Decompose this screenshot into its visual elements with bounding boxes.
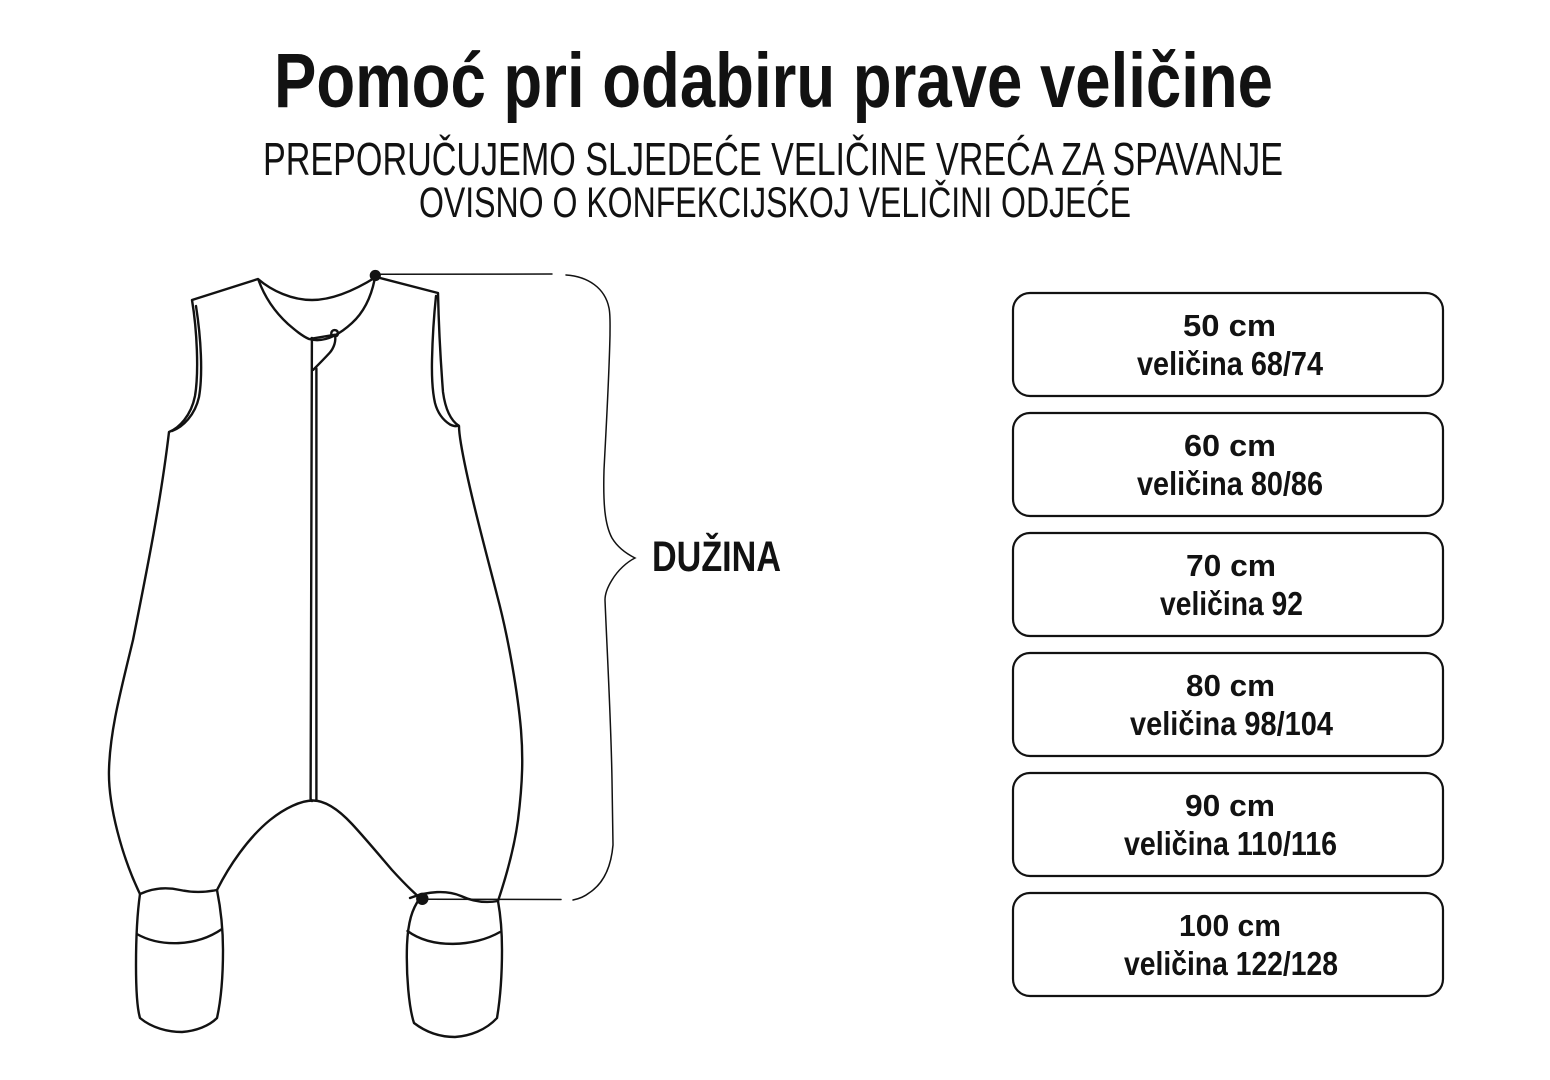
svg-text:veličina 122/128: veličina 122/128 — [1124, 945, 1338, 982]
svg-text:70 cm: 70 cm — [1186, 548, 1276, 583]
svg-text:60 cm: 60 cm — [1184, 428, 1276, 463]
svg-text:50 cm: 50 cm — [1183, 308, 1276, 343]
svg-text:90 cm: 90 cm — [1185, 788, 1275, 823]
svg-text:veličina 110/116: veličina 110/116 — [1124, 825, 1337, 862]
svg-text:80 cm: 80 cm — [1186, 668, 1275, 703]
svg-text:veličina 68/74: veličina 68/74 — [1137, 345, 1324, 382]
svg-text:veličina 92: veličina 92 — [1160, 585, 1303, 622]
svg-text:DUŽINA: DUŽINA — [652, 532, 781, 581]
svg-text:veličina 98/104: veličina 98/104 — [1130, 705, 1334, 742]
svg-text:veličina 80/86: veličina 80/86 — [1137, 465, 1323, 502]
svg-text:PREPORUČUJEMO SLJEDEĆE VELIČIN: PREPORUČUJEMO SLJEDEĆE VELIČINE VREĆA ZA… — [263, 133, 1283, 185]
svg-text:OVISNO O KONFEKCIJSKOJ VELIČIN: OVISNO O KONFEKCIJSKOJ VELIČINI ODJEĆE — [419, 179, 1131, 227]
svg-text:100 cm: 100 cm — [1179, 908, 1281, 943]
svg-text:Pomoć pri odabiru prave veliči: Pomoć pri odabiru prave veličine — [274, 38, 1273, 124]
